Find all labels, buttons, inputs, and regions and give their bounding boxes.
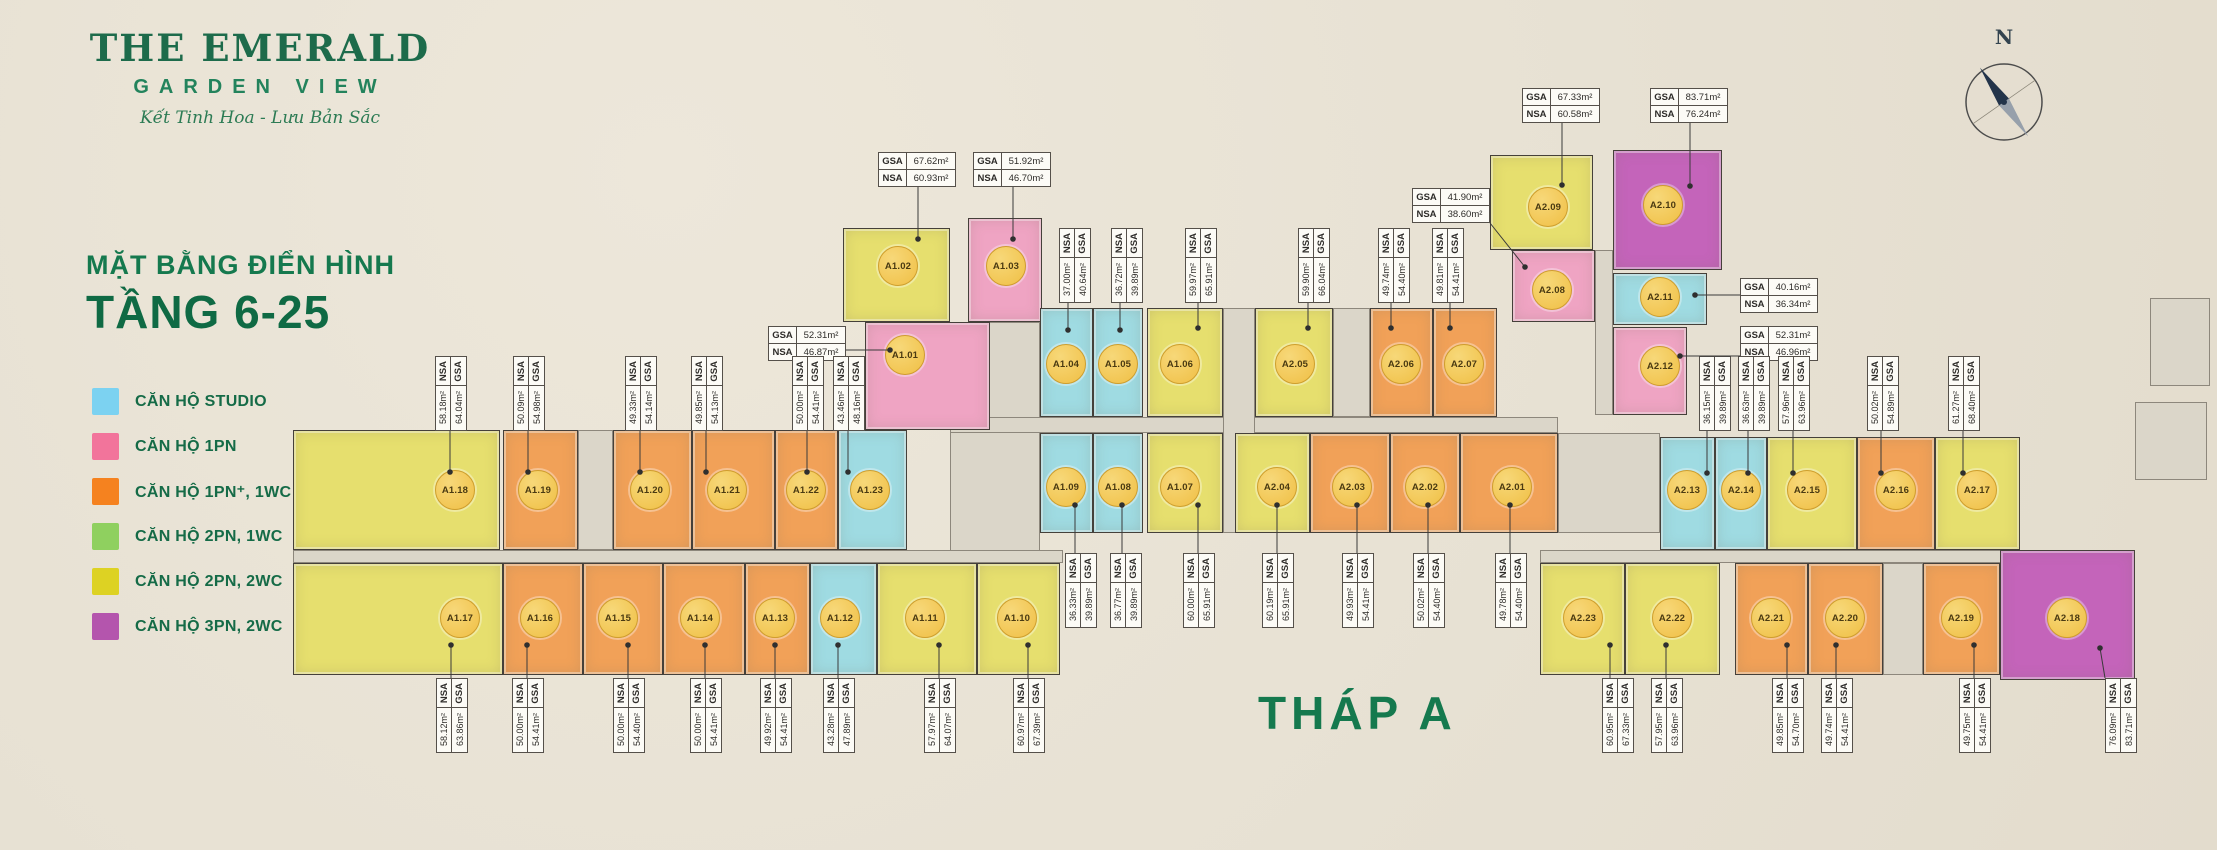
area-text: NSA xyxy=(1113,558,1124,578)
unit-badge-A2-23: A2.23 xyxy=(1563,598,1603,638)
nsa-term: NSA xyxy=(1822,679,1836,707)
area-text: NSA xyxy=(974,170,1001,186)
area-text: 83.71m² xyxy=(1679,89,1727,105)
area-label-A1-21: NSAGSA49.85m²54.13m² xyxy=(691,356,723,431)
nsa-value: 49.92m² xyxy=(761,708,775,752)
area-text: GSA xyxy=(530,683,541,704)
legend: CĂN HỘ STUDIOCĂN HỘ 1PNCĂN HỘ 1PN⁺, 1WCC… xyxy=(92,388,291,658)
area-label-A1-16: NSAGSA50.00m²54.41m² xyxy=(512,678,544,753)
area-text: NSA xyxy=(1605,683,1616,703)
building-core xyxy=(293,550,1063,563)
gsa-value: 54.41m² xyxy=(1975,708,1990,752)
area-text: NSA xyxy=(1741,296,1768,312)
area-label-A1-07: NSAGSA60.00m²65.91m² xyxy=(1183,553,1215,628)
nsa-value: 50.00m² xyxy=(513,708,527,752)
area-text: 47.89m² xyxy=(842,713,852,746)
area-text: 67.33m² xyxy=(1621,713,1631,746)
area-text: 57.96m² xyxy=(1781,391,1791,424)
gsa-term: GSA xyxy=(1201,229,1216,257)
nsa-value: 60.00m² xyxy=(1184,583,1198,627)
nsa-term: NSA xyxy=(1414,554,1428,582)
unit-badge-A2-07: A2.07 xyxy=(1444,344,1484,384)
nsa-term: NSA xyxy=(1066,554,1080,582)
area-text: GSA xyxy=(1413,189,1440,205)
area-text: 36.63m² xyxy=(1741,391,1751,424)
area-text: GSA xyxy=(778,683,789,704)
area-text: 39.89m² xyxy=(1084,588,1094,621)
area-label-A2-19: NSAGSA49.75m²54.41m² xyxy=(1959,678,1991,753)
unit-badge-A1-06: A1.06 xyxy=(1160,344,1200,384)
gsa-value: 68.40m² xyxy=(1964,386,1979,430)
unit-badge-A1-01: A1.01 xyxy=(885,335,925,375)
area-label-A1-17: NSAGSA58.12m²63.86m² xyxy=(436,678,468,753)
gsa-term: GSA xyxy=(641,357,656,385)
gsa-value: 40.64m² xyxy=(1075,258,1090,302)
area-text: 60.95m² xyxy=(1605,713,1615,746)
gsa-term: GSA xyxy=(1618,679,1633,707)
gsa-value: 54.98m² xyxy=(529,386,544,430)
legend-label: CĂN HỘ 2PN, 1WC xyxy=(135,528,283,546)
area-text: 52.31m² xyxy=(1769,327,1817,343)
nsa-value: 43.46m² xyxy=(834,386,848,430)
gsa-value: 65.91m² xyxy=(1199,583,1214,627)
area-text: 60.58m² xyxy=(1551,106,1599,122)
gsa-value: 54.41m² xyxy=(528,708,543,752)
gsa-value: 67.33m² xyxy=(1618,708,1633,752)
area-text: 58.18m² xyxy=(438,391,448,424)
nsa-value: 61.27m² xyxy=(1949,386,1963,430)
area-text: 49.93m² xyxy=(1345,588,1355,621)
area-text: GSA xyxy=(1450,233,1461,254)
nsa-term: NSA xyxy=(691,679,705,707)
gsa-term: GSA xyxy=(1788,679,1803,707)
gsa-value: 64.04m² xyxy=(451,386,466,430)
area-text: NSA xyxy=(693,683,704,703)
unit-badge-A2-10: A2.10 xyxy=(1643,185,1683,225)
area-label-A1-20: NSAGSA49.33m²54.14m² xyxy=(625,356,657,431)
gsa-term: GSA xyxy=(707,357,722,385)
gsa-value: 83.71m² xyxy=(2121,708,2136,752)
area-label-A2-09: GSA67.33m²NSA60.58m² xyxy=(1522,88,1600,123)
area-text: NSA xyxy=(1951,361,1962,381)
unit-badge-A2-20: A2.20 xyxy=(1825,598,1865,638)
unit-badge-A1-04: A1.04 xyxy=(1046,344,1086,384)
gsa-term: GSA xyxy=(1278,554,1293,582)
area-text: 63.96m² xyxy=(1670,713,1680,746)
area-text: 54.41m² xyxy=(709,713,719,746)
nsa-value: 59.97m² xyxy=(1186,258,1200,302)
area-text: 65.91m² xyxy=(1202,588,1212,621)
unit-badge-A1-22: A1.22 xyxy=(786,470,826,510)
unit-badge-A2-18: A2.18 xyxy=(2047,598,2087,638)
area-text: 54.89m² xyxy=(1886,391,1896,424)
area-text: 65.91m² xyxy=(1204,263,1214,296)
area-text: 68.40m² xyxy=(1967,391,1977,424)
area-text: 39.89m² xyxy=(1130,263,1140,296)
nsa-term: NSA xyxy=(824,679,838,707)
area-text: NSA xyxy=(1416,558,1427,578)
area-text: 50.00m² xyxy=(515,713,525,746)
nsa-term: NSA xyxy=(2106,679,2120,707)
gsa-value: 54.41m² xyxy=(1837,708,1852,752)
area-text: GSA xyxy=(643,361,654,382)
gsa-value: 65.91m² xyxy=(1201,258,1216,302)
area-text: 54.41m² xyxy=(811,391,821,424)
nsa-value: 36.15m² xyxy=(1700,386,1714,430)
area-text: GSA xyxy=(974,153,1001,169)
area-label-A2-04: NSAGSA60.19m²65.91m² xyxy=(1262,553,1294,628)
area-text: NSA xyxy=(763,683,774,703)
nsa-value: 49.78m² xyxy=(1496,583,1510,627)
gsa-term: GSA xyxy=(2121,679,2136,707)
area-text: 36.34m² xyxy=(1769,296,1817,312)
gsa-value: 54.41m² xyxy=(1358,583,1373,627)
area-label-A1-15: NSAGSA50.00m²54.40m² xyxy=(613,678,645,753)
area-text: 49.75m² xyxy=(1962,713,1972,746)
nsa-term: NSA xyxy=(793,357,807,385)
area-text: 40.64m² xyxy=(1078,263,1088,296)
area-label-A1-10: NSAGSA60.97m²67.39m² xyxy=(1013,678,1045,753)
area-text: GSA xyxy=(769,327,796,343)
gsa-value: 54.40m² xyxy=(1394,258,1409,302)
area-text: 36.15m² xyxy=(1702,391,1712,424)
area-text: GSA xyxy=(709,361,720,382)
area-text: NSA xyxy=(1062,233,1073,253)
nsa-value: 50.00m² xyxy=(691,708,705,752)
gsa-term: GSA xyxy=(1126,554,1141,582)
unit-badge-A2-13: A2.13 xyxy=(1667,470,1707,510)
area-text: 66.04m² xyxy=(1317,263,1327,296)
area-label-A1-03: GSA51.92m²NSA46.70m² xyxy=(973,152,1051,187)
nsa-term: NSA xyxy=(761,679,775,707)
area-text: 49.74m² xyxy=(1824,713,1834,746)
area-text: NSA xyxy=(516,361,527,381)
area-label-A1-13: NSAGSA49.92m²54.41m² xyxy=(760,678,792,753)
area-text: GSA xyxy=(1669,683,1680,704)
legend-item: CĂN HỘ 1PN xyxy=(92,433,291,460)
area-text: GSA xyxy=(453,361,464,382)
area-text: GSA xyxy=(1977,683,1988,704)
legend-label: CĂN HỘ STUDIO xyxy=(135,393,267,411)
area-text: 54.41m² xyxy=(1978,713,1988,746)
unit-badge-A1-02: A1.02 xyxy=(878,246,918,286)
legend-swatch xyxy=(92,388,119,415)
area-text: 67.33m² xyxy=(1551,89,1599,105)
gsa-term: GSA xyxy=(849,357,864,385)
area-text: 57.95m² xyxy=(1654,713,1664,746)
gsa-value: 54.14m² xyxy=(641,386,656,430)
gsa-value: 48.16m² xyxy=(849,386,864,430)
area-text: NSA xyxy=(616,683,627,703)
legend-swatch xyxy=(92,433,119,460)
nsa-value: 57.97m² xyxy=(925,708,939,752)
gsa-term: GSA xyxy=(808,357,823,385)
area-label-A1-08: NSAGSA36.77m²39.89m² xyxy=(1110,553,1142,628)
nsa-term: NSA xyxy=(1868,357,1882,385)
nsa-value: 36.72m² xyxy=(1112,258,1126,302)
area-label-A2-18: NSAGSA76.09m²83.71m² xyxy=(2105,678,2137,753)
nsa-term: NSA xyxy=(1299,229,1313,257)
gsa-term: GSA xyxy=(940,679,955,707)
unit-badge-A2-19: A2.19 xyxy=(1941,598,1981,638)
area-label-A2-10: GSA83.71m²NSA76.24m² xyxy=(1650,88,1728,123)
area-text: NSA xyxy=(1016,683,1027,703)
gsa-term: GSA xyxy=(1127,229,1142,257)
nsa-value: 60.97m² xyxy=(1014,708,1028,752)
area-text: 54.13m² xyxy=(710,391,720,424)
area-text: NSA xyxy=(1413,206,1440,222)
gsa-value: 39.89m² xyxy=(1081,583,1096,627)
area-text: GSA xyxy=(1885,361,1896,382)
nsa-value: 36.33m² xyxy=(1066,583,1080,627)
area-text: GSA xyxy=(851,361,862,382)
nsa-term: NSA xyxy=(436,357,450,385)
plan-heading-floors: TẦNG 6-25 xyxy=(86,285,395,339)
area-text: 43.46m² xyxy=(836,391,846,424)
area-text: GSA xyxy=(1128,558,1139,579)
nsa-term: NSA xyxy=(626,357,640,385)
area-text: 60.93m² xyxy=(907,170,955,186)
area-text: GSA xyxy=(2123,683,2134,704)
unit-badge-A1-09: A1.09 xyxy=(1046,467,1086,507)
legend-label: CĂN HỘ 1PN⁺, 1WC xyxy=(135,482,291,502)
area-text: 59.97m² xyxy=(1188,263,1198,296)
nsa-value: 50.09m² xyxy=(514,386,528,430)
area-text: NSA xyxy=(1870,361,1881,381)
nsa-value: 57.95m² xyxy=(1652,708,1666,752)
area-text: NSA xyxy=(1381,233,1392,253)
building-core xyxy=(1333,308,1370,417)
area-text: 54.98m² xyxy=(532,391,542,424)
unit-badge-A2-08: A2.08 xyxy=(1532,270,1572,310)
area-text: NSA xyxy=(1114,233,1125,253)
area-text: NSA xyxy=(1824,683,1835,703)
gsa-term: GSA xyxy=(1715,357,1730,385)
gsa-term: GSA xyxy=(1511,554,1526,582)
legend-swatch xyxy=(92,523,119,550)
area-text: GSA xyxy=(1129,233,1140,254)
gsa-value: 66.04m² xyxy=(1314,258,1329,302)
brand-tagline: Kết Tinh Hoa - Lưu Bản Sắc xyxy=(55,108,465,128)
gsa-term: GSA xyxy=(1394,229,1409,257)
area-text: 64.04m² xyxy=(454,391,464,424)
unit-badge-A1-19: A1.19 xyxy=(518,470,558,510)
area-text: 54.41m² xyxy=(1451,263,1461,296)
area-label-A1-04: NSAGSA37.00m²40.64m² xyxy=(1059,228,1091,303)
unit-badge-A2-12: A2.12 xyxy=(1640,346,1680,386)
area-label-A2-21: NSAGSA49.85m²54.70m² xyxy=(1772,678,1804,753)
gsa-term: GSA xyxy=(1314,229,1329,257)
area-text: 51.92m² xyxy=(1002,153,1050,169)
area-label-A2-11: GSA40.16m²NSA36.34m² xyxy=(1740,278,1818,313)
area-text: 49.85m² xyxy=(694,391,704,424)
area-text: NSA xyxy=(826,683,837,703)
area-text: GSA xyxy=(631,683,642,704)
legend-swatch xyxy=(92,613,119,640)
area-text: 60.97m² xyxy=(1016,713,1026,746)
area-text: GSA xyxy=(1523,89,1550,105)
unit-badge-A1-03: A1.03 xyxy=(986,246,1026,286)
area-label-A2-15: NSAGSA57.96m²63.96m² xyxy=(1778,356,1810,431)
area-text: NSA xyxy=(879,170,906,186)
area-text: 43.28m² xyxy=(826,713,836,746)
gsa-value: 47.89m² xyxy=(839,708,854,752)
area-text: 83.71m² xyxy=(2124,713,2134,746)
area-text: GSA xyxy=(942,683,953,704)
area-text: 65.91m² xyxy=(1281,588,1291,621)
nsa-term: NSA xyxy=(514,357,528,385)
area-text: 63.96m² xyxy=(1797,391,1807,424)
area-text: 61.27m² xyxy=(1951,391,1961,424)
area-label-A2-02: NSAGSA50.02m²54.40m² xyxy=(1413,553,1445,628)
gsa-value: 54.70m² xyxy=(1788,708,1803,752)
area-text: NSA xyxy=(515,683,526,703)
area-text: GSA xyxy=(810,361,821,382)
gsa-term: GSA xyxy=(776,679,791,707)
area-text: 64.07m² xyxy=(943,713,953,746)
nsa-term: NSA xyxy=(1949,357,1963,385)
gsa-term: GSA xyxy=(1448,229,1463,257)
gsa-term: GSA xyxy=(1975,679,1990,707)
nsa-term: NSA xyxy=(1112,229,1126,257)
gsa-term: GSA xyxy=(1075,229,1090,257)
unit-badge-A1-08: A1.08 xyxy=(1098,467,1138,507)
area-text: 50.02m² xyxy=(1416,588,1426,621)
area-text: NSA xyxy=(694,361,705,381)
area-text: GSA xyxy=(1741,279,1768,295)
area-label-A2-13: NSAGSA36.15m²39.89m² xyxy=(1699,356,1731,431)
area-text: GSA xyxy=(1839,683,1850,704)
area-text: NSA xyxy=(628,361,639,381)
area-text: NSA xyxy=(1188,233,1199,253)
area-text: 54.14m² xyxy=(644,391,654,424)
area-text: NSA xyxy=(1301,233,1312,253)
tower-label: THÁP A xyxy=(1258,686,1457,740)
area-label-A1-05: NSAGSA36.72m²39.89m² xyxy=(1111,228,1143,303)
area-label-A2-05: NSAGSA59.90m²66.04m² xyxy=(1298,228,1330,303)
area-label-A2-01: NSAGSA49.78m²54.40m² xyxy=(1495,553,1527,628)
area-text: 50.00m² xyxy=(616,713,626,746)
nsa-value: 50.02m² xyxy=(1868,386,1882,430)
area-text: NSA xyxy=(1186,558,1197,578)
area-label-A2-08: GSA41.90m²NSA38.60m² xyxy=(1412,188,1490,223)
area-text: NSA xyxy=(1435,233,1446,253)
gsa-value: 54.41m² xyxy=(808,386,823,430)
nsa-term: NSA xyxy=(1700,357,1714,385)
area-text: GSA xyxy=(454,683,465,704)
area-label-A2-20: NSAGSA49.74m²54.41m² xyxy=(1821,678,1853,753)
unit-badge-A1-23: A1.23 xyxy=(850,470,890,510)
nsa-value: 50.02m² xyxy=(1414,583,1428,627)
area-text: GSA xyxy=(1360,558,1371,579)
unit-badge-A2-11: A2.11 xyxy=(1640,277,1680,317)
area-text: 60.00m² xyxy=(1186,588,1196,621)
area-label-A2-17: NSAGSA61.27m²68.40m² xyxy=(1948,356,1980,431)
gsa-value: 67.39m² xyxy=(1029,708,1044,752)
brand-subtitle: GARDEN VIEW xyxy=(55,76,465,99)
area-text: NSA xyxy=(795,361,806,381)
gsa-term: GSA xyxy=(1794,357,1809,385)
area-text: GSA xyxy=(708,683,719,704)
gsa-term: GSA xyxy=(1837,679,1852,707)
area-label-A2-06: NSAGSA49.74m²54.40m² xyxy=(1378,228,1410,303)
nsa-value: 59.90m² xyxy=(1299,258,1313,302)
unit-badge-A1-18: A1.18 xyxy=(435,470,475,510)
nsa-value: 58.12m² xyxy=(437,708,451,752)
area-label-A1-18: NSAGSA58.18m²64.04m² xyxy=(435,356,467,431)
unit-badge-A2-21: A2.21 xyxy=(1751,598,1791,638)
area-text: NSA xyxy=(836,361,847,381)
area-text: 50.09m² xyxy=(516,391,526,424)
area-label-A1-14: NSAGSA50.00m²54.41m² xyxy=(690,678,722,753)
gsa-value: 54.40m² xyxy=(1511,583,1526,627)
area-label-A1-02: GSA67.62m²NSA60.93m² xyxy=(878,152,956,187)
gsa-value: 39.89m² xyxy=(1754,386,1769,430)
area-text: 50.02m² xyxy=(1870,391,1880,424)
building-core xyxy=(1540,550,2010,563)
nsa-term: NSA xyxy=(614,679,628,707)
area-text: 38.60m² xyxy=(1441,206,1489,222)
nsa-value: 58.18m² xyxy=(436,386,450,430)
area-label-A1-11: NSAGSA57.97m²64.07m² xyxy=(924,678,956,753)
nsa-term: NSA xyxy=(1496,554,1510,582)
legend-swatch xyxy=(92,478,119,505)
area-text: GSA xyxy=(1717,361,1728,382)
unit-badge-A2-16: A2.16 xyxy=(1876,470,1916,510)
area-label-A2-03: NSAGSA49.93m²54.41m² xyxy=(1342,553,1374,628)
legend-label: CĂN HỘ 1PN xyxy=(135,438,237,456)
gsa-value: 39.89m² xyxy=(1715,386,1730,430)
unit-badge-A2-09: A2.09 xyxy=(1528,187,1568,227)
area-label-A1-09: NSAGSA36.33m²39.89m² xyxy=(1065,553,1097,628)
gsa-value: 39.89m² xyxy=(1127,258,1142,302)
nsa-value: 49.81m² xyxy=(1433,258,1447,302)
plan-heading: MẶT BẰNG ĐIỂN HÌNH TẦNG 6-25 xyxy=(86,250,395,339)
nsa-term: NSA xyxy=(1779,357,1793,385)
area-label-A1-19: NSAGSA50.09m²54.98m² xyxy=(513,356,545,431)
area-text: NSA xyxy=(1523,106,1550,122)
area-text: GSA xyxy=(1316,233,1327,254)
brand-logo: THE EMERALD GARDEN VIEW Kết Tinh Hoa - L… xyxy=(55,26,465,128)
area-text: NSA xyxy=(1068,558,1079,578)
unit-badge-A1-14: A1.14 xyxy=(680,598,720,638)
nsa-term: NSA xyxy=(1343,554,1357,582)
gsa-value: 65.91m² xyxy=(1278,583,1293,627)
area-text: 46.70m² xyxy=(1002,170,1050,186)
nsa-term: NSA xyxy=(925,679,939,707)
area-label-A1-06: NSAGSA59.97m²65.91m² xyxy=(1185,228,1217,303)
unit-badge-A1-10: A1.10 xyxy=(997,598,1037,638)
gsa-term: GSA xyxy=(528,679,543,707)
building-core xyxy=(2135,402,2207,480)
nsa-value: 49.85m² xyxy=(692,386,706,430)
area-text: 67.39m² xyxy=(1032,713,1042,746)
area-label-A1-23: NSAGSA43.46m²48.16m² xyxy=(833,356,865,431)
nsa-value: 43.28m² xyxy=(824,708,838,752)
legend-item: CĂN HỘ 2PN, 2WC xyxy=(92,568,291,595)
area-text: 76.24m² xyxy=(1679,106,1727,122)
compass-north-label: N xyxy=(1995,25,2013,49)
area-text: 54.40m² xyxy=(1432,588,1442,621)
area-text: NSA xyxy=(927,683,938,703)
area-text: NSA xyxy=(438,361,449,381)
gsa-value: 54.89m² xyxy=(1883,386,1898,430)
nsa-value: 37.00m² xyxy=(1060,258,1074,302)
area-text: GSA xyxy=(1031,683,1042,704)
legend-item: CĂN HỘ 1PN⁺, 1WC xyxy=(92,478,291,505)
plan-heading-line1: MẶT BẰNG ĐIỂN HÌNH xyxy=(86,250,395,281)
area-text: NSA xyxy=(1962,683,1973,703)
